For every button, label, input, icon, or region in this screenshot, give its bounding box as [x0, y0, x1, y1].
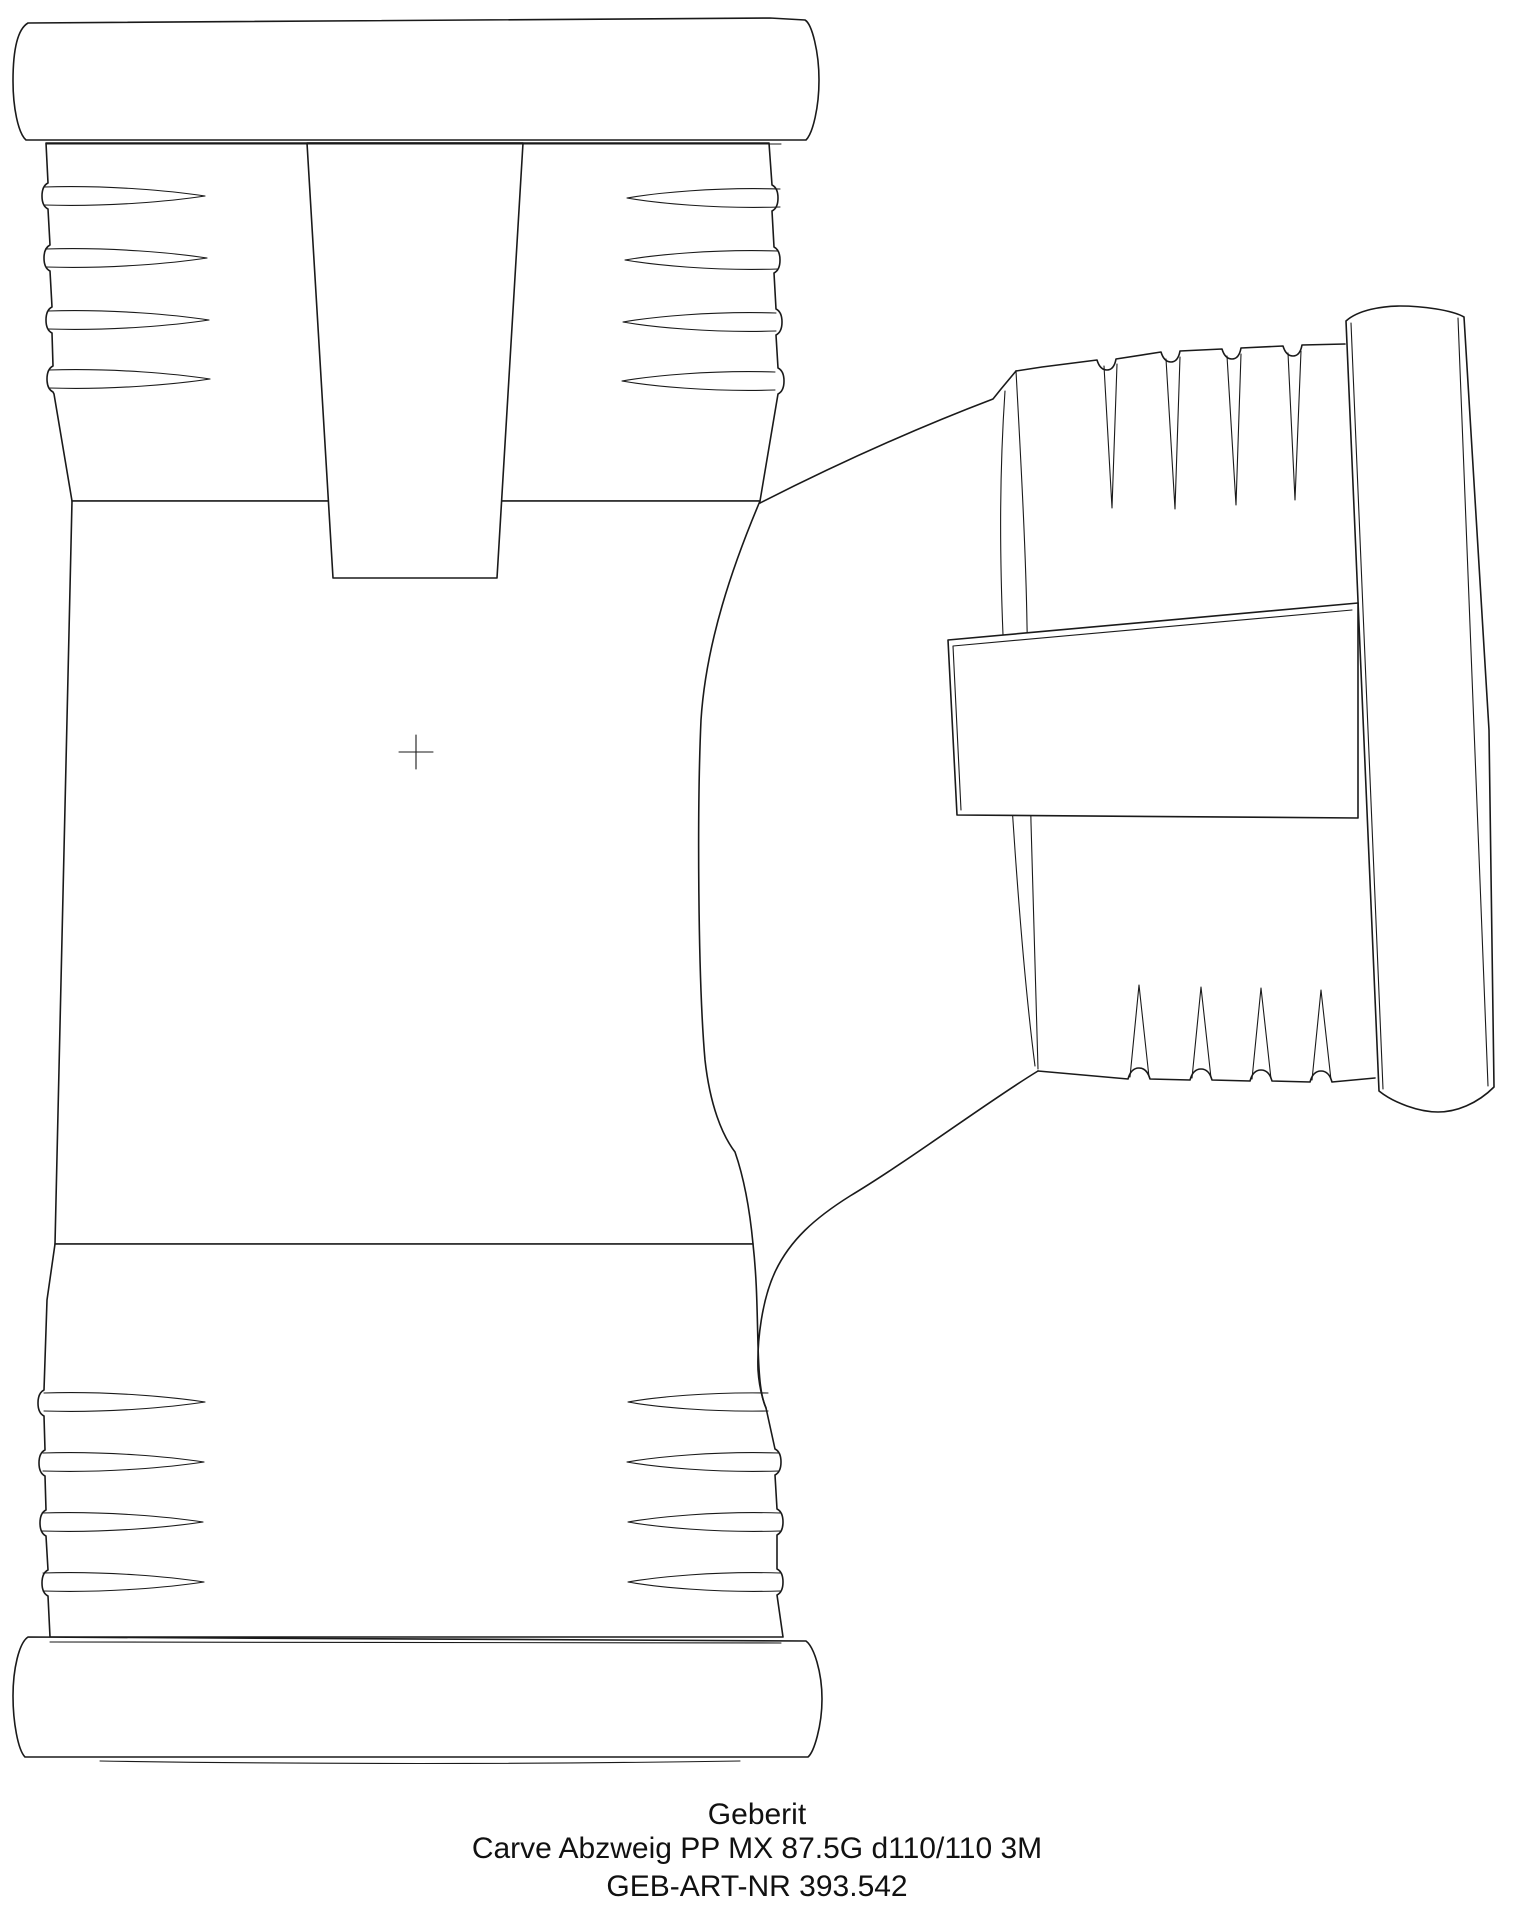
top-collar [13, 18, 819, 140]
branch-lower-sweep [758, 1071, 1038, 1408]
branch-outlet [758, 306, 1494, 1408]
caption-article-number: GEB-ART-NR 393.542 [606, 1870, 907, 1903]
branch-upper-sweep [760, 371, 1016, 503]
main-run-pipe [13, 18, 822, 1764]
branch-bottom-edge [1038, 1068, 1375, 1082]
branch-top-grooves [1104, 351, 1301, 509]
bottom-socket-body [38, 1244, 783, 1637]
product-caption: Geberit Carve Abzweig PP MX 87.5G d110/1… [472, 1798, 1042, 1903]
pipe-body [55, 501, 760, 1244]
branch-bottom-grooves [1130, 985, 1331, 1080]
marking-tab-top [307, 143, 523, 578]
caption-description: Carve Abzweig PP MX 87.5G d110/110 3M [472, 1832, 1042, 1865]
drawing-page: Geberit Carve Abzweig PP MX 87.5G d110/1… [0, 0, 1515, 1920]
branch-socket-ring [1346, 306, 1494, 1112]
caption-brand: Geberit [708, 1798, 807, 1831]
marking-tab-branch [948, 603, 1358, 818]
bottom-collar-outer-edge [100, 1761, 740, 1764]
bottom-collar [13, 1637, 822, 1757]
technical-drawing: Geberit Carve Abzweig PP MX 87.5G d110/1… [0, 0, 1515, 1920]
